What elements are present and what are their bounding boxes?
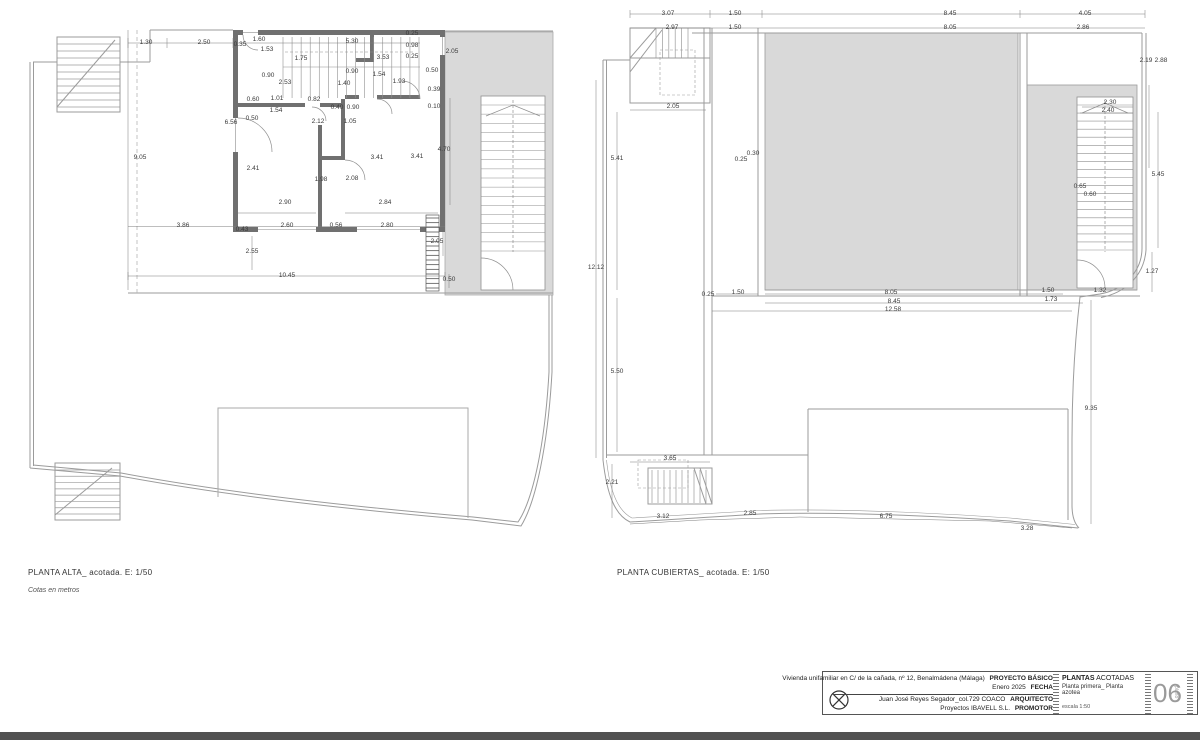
dim-label: 1.27 bbox=[1146, 268, 1159, 275]
dim-label: 2.97 bbox=[666, 24, 679, 31]
dim-label: 0.82 bbox=[308, 96, 321, 103]
dim-label: 0.90 bbox=[262, 72, 275, 79]
dim-label: 12.58 bbox=[885, 306, 902, 313]
scale-note: escala 1:50 bbox=[1062, 704, 1090, 710]
dim-label: 0.35 bbox=[234, 41, 247, 48]
dim-label: 2.41 bbox=[247, 165, 260, 172]
sheet-title: PLANTAS ACOTADAS bbox=[1062, 675, 1142, 682]
title-block: Vivienda unifamiliar en C/ de la cañada,… bbox=[822, 671, 1198, 715]
left-window-lines bbox=[236, 33, 443, 230]
dim-label: 9.35 bbox=[1085, 405, 1098, 412]
dim-label: 4.70 bbox=[438, 146, 451, 153]
dim-label: 2.86 bbox=[1077, 24, 1090, 31]
dim-label: 1.05 bbox=[344, 118, 357, 125]
date-row: Enero 2025 FECHA bbox=[992, 684, 1053, 691]
dim-label: 2.80 bbox=[381, 222, 394, 229]
dim-label: 0.10 bbox=[428, 103, 441, 110]
promoter-value: Proyectos IBAVELL S.L. bbox=[940, 705, 1010, 712]
dim-label: 2.53 bbox=[279, 79, 292, 86]
dim-label: 0.25 bbox=[406, 53, 419, 60]
dim-label: 6.75 bbox=[880, 513, 893, 520]
dim-label: 0.40 bbox=[331, 104, 344, 111]
dim-label: 2.84 bbox=[379, 199, 392, 206]
dim-label: 0.60 bbox=[1084, 191, 1097, 198]
dim-label: 1.01 bbox=[271, 95, 284, 102]
dim-label: 3.53 bbox=[377, 54, 390, 61]
dim-label: 2.50 bbox=[198, 39, 211, 46]
dim-label: 0.50 bbox=[426, 67, 439, 74]
dim-label: 0.25 bbox=[406, 30, 419, 37]
sheet-canvas: 1.302.500.351.601.535.300.250.980.252.05… bbox=[0, 0, 1200, 740]
date-value: Enero 2025 bbox=[992, 684, 1026, 691]
dim-label: 1.93 bbox=[393, 78, 406, 85]
dim-label: 9.05 bbox=[134, 154, 147, 161]
dim-label: 5.45 bbox=[1152, 171, 1165, 178]
dim-label: 8.05 bbox=[944, 24, 957, 31]
sheet-title-strong: PLANTAS bbox=[1062, 675, 1095, 682]
dim-label: 3.41 bbox=[411, 153, 424, 160]
dim-label: 0.50 bbox=[443, 276, 456, 283]
right-bottom-stair-treads bbox=[652, 470, 706, 503]
dim-label: 8.45 bbox=[888, 298, 901, 305]
dim-label: 2.88 bbox=[1155, 57, 1168, 64]
dim-label: 12.12 bbox=[588, 264, 605, 271]
dim-label: 2.05 bbox=[431, 238, 444, 245]
right-plan-title: PLANTA CUBIERTAS_ acotada. E: 1/50 bbox=[617, 568, 770, 577]
dim-label: 1.50 bbox=[729, 10, 742, 17]
dim-label: 1.98 bbox=[315, 176, 328, 183]
right-topleft-stair-treads bbox=[656, 28, 688, 58]
dim-label: 3.86 bbox=[177, 222, 190, 229]
dim-label: 8.05 bbox=[885, 289, 898, 296]
dim-label: 5.30 bbox=[346, 38, 359, 45]
dim-label: 0.43 bbox=[236, 226, 249, 233]
dim-label: 5.41 bbox=[611, 155, 624, 162]
dim-label: 1.60 bbox=[253, 36, 266, 43]
dim-label: 2.40 bbox=[1102, 107, 1115, 114]
floor-plans-drawing: 1.302.500.351.601.535.300.250.980.252.05… bbox=[0, 0, 1200, 740]
project-description: Vivienda unifamiliar en C/ de la cañada,… bbox=[782, 675, 984, 682]
dim-label: 0.50 bbox=[246, 115, 259, 122]
promoter-row: Proyectos IBAVELL S.L. PROMOTOR bbox=[940, 705, 1053, 712]
dim-label: 2.90 bbox=[279, 199, 292, 206]
sheet-title-rest: ACOTADAS bbox=[1095, 675, 1135, 682]
dim-label: 3.28 bbox=[1021, 525, 1034, 532]
dim-label: 0.90 bbox=[346, 68, 359, 75]
sheet-number-caption: plano bbox=[1173, 686, 1179, 698]
dim-label: 0.39 bbox=[428, 86, 441, 93]
architect-label: ARQUITECTO bbox=[1010, 696, 1053, 703]
dim-label: 1.54 bbox=[373, 71, 386, 78]
dim-label: 4.05 bbox=[1079, 10, 1092, 17]
dim-label: 1.75 bbox=[295, 55, 308, 62]
dim-label: 2.30 bbox=[1104, 99, 1117, 106]
title-block-text: Vivienda unifamiliar en C/ de la cañada,… bbox=[831, 672, 1053, 714]
dim-label: 1.30 bbox=[140, 39, 153, 46]
dim-label: 1.32 bbox=[1094, 287, 1107, 294]
architect-value: Juan José Reyes Segador_col.729 COACO bbox=[879, 696, 1005, 703]
dim-label: 1.50 bbox=[729, 24, 742, 31]
left-plan-subtitle: Cotas en metros bbox=[28, 587, 79, 594]
dim-label: 2.12 bbox=[312, 118, 325, 125]
dim-label: 10.45 bbox=[279, 272, 296, 279]
sheet-title-cell: PLANTAS ACOTADAS Planta primera_ Planta … bbox=[1062, 675, 1142, 696]
dim-label: 2.05 bbox=[446, 48, 459, 55]
dim-label: 0.65 bbox=[1074, 183, 1087, 190]
dim-label: 0.25 bbox=[702, 291, 715, 298]
dim-label: 6.56 bbox=[225, 119, 238, 126]
dim-label: 0.25 bbox=[735, 156, 748, 163]
bottom-bar bbox=[0, 732, 1200, 740]
dim-label: 2.55 bbox=[246, 248, 259, 255]
dim-label: 1.50 bbox=[1042, 287, 1055, 294]
left-dimension-lines bbox=[128, 30, 450, 290]
project-label: PROYECTO BÁSICO bbox=[990, 675, 1053, 682]
left-plan-title: PLANTA ALTA_ acotada. E: 1/50 bbox=[28, 568, 152, 577]
dim-label: 0.98 bbox=[406, 42, 419, 49]
dim-label: 0.56 bbox=[330, 222, 343, 229]
dim-label: 0.30 bbox=[747, 150, 760, 157]
dim-label: 1.50 bbox=[732, 289, 745, 296]
dim-label: 1.40 bbox=[338, 80, 351, 87]
left-topleft-stair-hatch bbox=[57, 44, 120, 107]
dim-label: 0.90 bbox=[347, 104, 360, 111]
dim-label: 5.50 bbox=[611, 368, 624, 375]
date-label: FECHA bbox=[1031, 684, 1053, 691]
sheet-subtitle: Planta primera_ Planta azotea bbox=[1062, 684, 1142, 696]
dim-label: 1.53 bbox=[261, 46, 274, 53]
project-row: Vivienda unifamiliar en C/ de la cañada,… bbox=[782, 675, 1053, 682]
dim-label: 2.85 bbox=[744, 510, 757, 517]
dim-label: 2.08 bbox=[346, 175, 359, 182]
title-block-divider bbox=[833, 694, 1053, 695]
dim-label: 2.21 bbox=[606, 479, 619, 486]
dim-label: 1.54 bbox=[270, 107, 283, 114]
dim-label: 3.07 bbox=[662, 10, 675, 17]
dim-label: 2.19 bbox=[1140, 57, 1153, 64]
dim-label: 3.65 bbox=[664, 455, 677, 462]
dim-label: 3.41 bbox=[371, 154, 384, 161]
dim-label: 8.45 bbox=[944, 10, 957, 17]
title-block-hatch-strip bbox=[1145, 672, 1151, 714]
promoter-label: PROMOTOR bbox=[1015, 705, 1053, 712]
title-block-hatch-strip bbox=[1053, 672, 1059, 714]
dim-label: 0.60 bbox=[247, 96, 260, 103]
dim-label: 2.60 bbox=[281, 222, 294, 229]
left-bottomleft-stair-hatch bbox=[55, 470, 120, 514]
architect-row: Juan José Reyes Segador_col.729 COACO AR… bbox=[879, 696, 1053, 703]
dim-label: 2.05 bbox=[667, 103, 680, 110]
title-block-hatch-strip bbox=[1187, 672, 1193, 714]
dim-label: 3.12 bbox=[657, 513, 670, 520]
dim-label: 1.73 bbox=[1045, 296, 1058, 303]
